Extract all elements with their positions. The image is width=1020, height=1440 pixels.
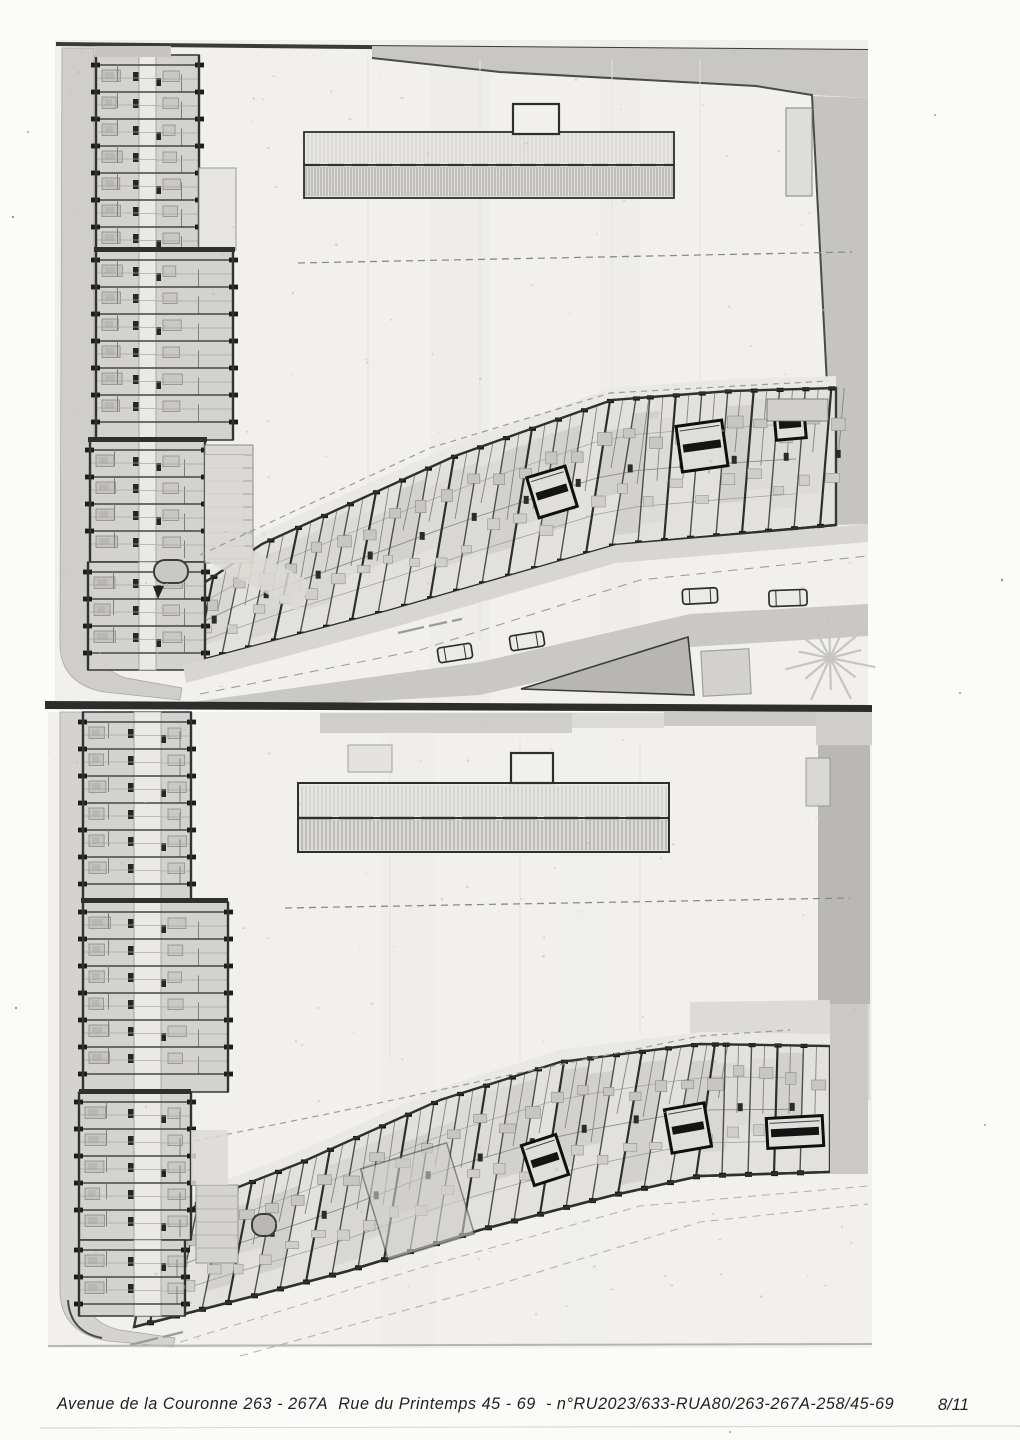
svg-text:8/11: 8/11 <box>938 1396 969 1414</box>
svg-text:Avenue de la Couronne 263 - 26: Avenue de la Couronne 263 - 267A Rue du … <box>56 1395 894 1413</box>
